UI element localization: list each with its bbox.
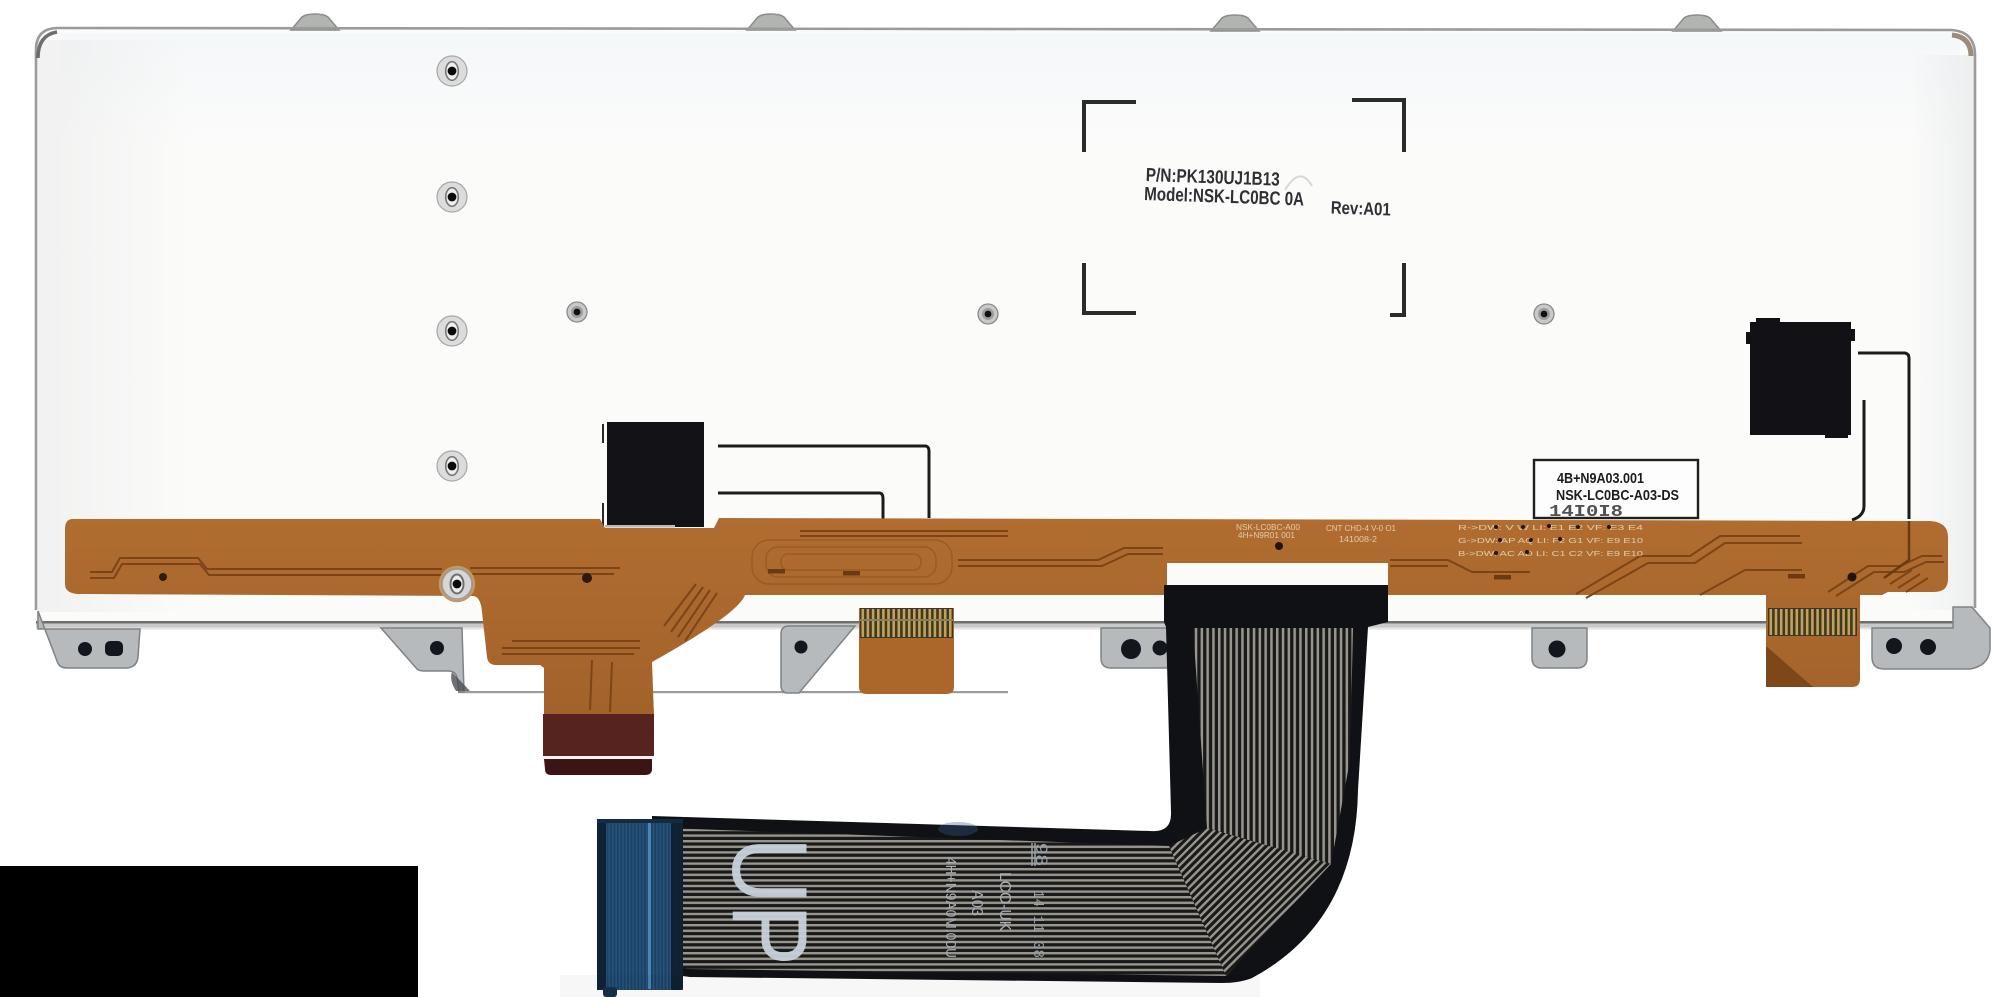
svg-text:G->DW: AP AQ LI: F2 G1 VF: E9: G->DW: AP AQ LI: F2 G1 VF: E9 E10 bbox=[1458, 536, 1643, 545]
svg-text:4B+N9A03.001: 4B+N9A03.001 bbox=[1557, 470, 1644, 487]
svg-text:NSK-LC0BC-A03-DS: NSK-LC0BC-A03-DS bbox=[1556, 487, 1679, 504]
svg-text:141008-2: 141008-2 bbox=[1339, 535, 1378, 544]
svg-text:LCO-UK: LCO-UK bbox=[996, 872, 1013, 931]
svg-text:14 11:08: 14 11:08 bbox=[1029, 890, 1046, 958]
svg-text:A03: A03 bbox=[968, 890, 985, 916]
svg-text:R->DW: V W LI: E1 E2 VF: E3 E4: R->DW: V W LI: E1 E2 VF: E3 E4 bbox=[1458, 523, 1643, 532]
svg-text:4H+N9R01 001: 4H+N9R01 001 bbox=[1238, 531, 1296, 540]
svg-text:14I0I8: 14I0I8 bbox=[1549, 503, 1623, 522]
svg-text:Rev:A01: Rev:A01 bbox=[1330, 197, 1391, 219]
svg-text:B->DW: AC AD LI: C1 C2 VF: E9: B->DW: AC AD LI: C1 C2 VF: E9 E10 bbox=[1458, 549, 1643, 558]
svg-text:4H+N9A0M.00U: 4H+N9A0M.00U bbox=[942, 857, 958, 958]
svg-text:UP: UP bbox=[710, 837, 830, 966]
svg-text:CNT CHD-4 V-0 O1: CNT CHD-4 V-0 O1 bbox=[1326, 524, 1397, 533]
